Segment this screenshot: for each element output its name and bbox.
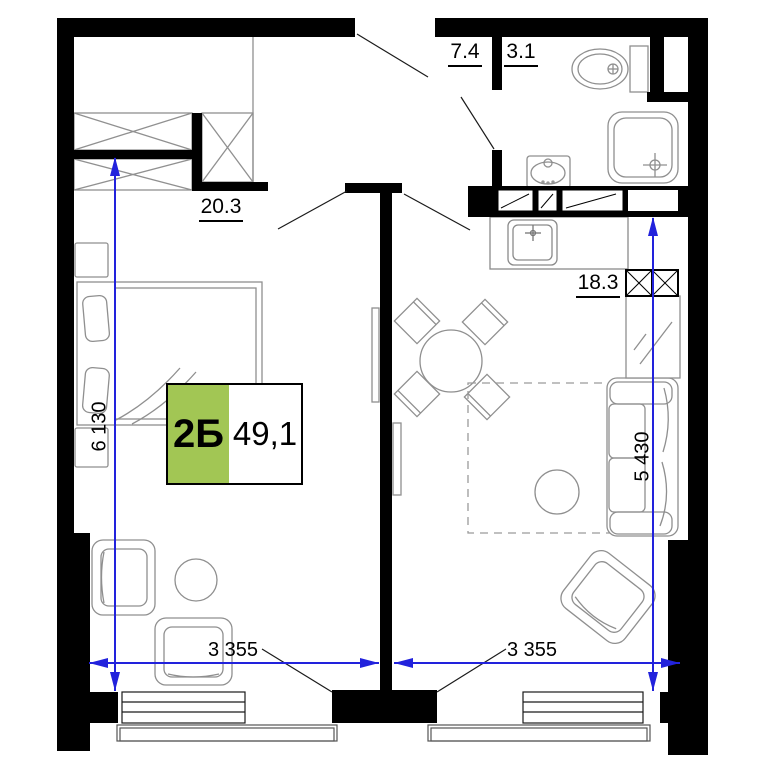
unit-area: 49,1 xyxy=(229,385,301,483)
window xyxy=(523,692,643,723)
floor-plan: 20.3 7.4 3.1 18.3 6 130 5 430 3 355 3 35… xyxy=(0,0,768,768)
washbasin xyxy=(527,156,570,188)
side-table xyxy=(175,559,217,601)
entrance-door-swing xyxy=(357,34,428,77)
balcony-sill xyxy=(117,725,650,741)
hall-closet-doors xyxy=(498,190,678,211)
lounge-armchair xyxy=(556,545,661,648)
bedroom-door-swing xyxy=(278,191,347,229)
wardrobe xyxy=(74,34,253,190)
bathroom-door-swing xyxy=(461,97,494,149)
room-label-living-kitchen: 18.3 xyxy=(568,271,628,298)
coffee-table xyxy=(535,470,579,514)
living-door-swing xyxy=(404,194,470,230)
console-shelf xyxy=(393,423,401,495)
room-label-bathroom: 3.1 xyxy=(496,40,546,67)
armchair xyxy=(92,540,155,615)
floor-plan-drawing xyxy=(0,0,768,768)
room-label-hall: 7.4 xyxy=(440,40,490,67)
window xyxy=(122,692,245,723)
room-label-bedroom: 20.3 xyxy=(191,195,251,222)
dimension-living-width: 3 355 xyxy=(492,639,572,662)
shower-tray xyxy=(608,112,678,183)
dimension-bedroom-width: 3 355 xyxy=(193,639,273,662)
toilet xyxy=(572,46,648,92)
console-shelf xyxy=(372,308,379,402)
dimension-living-height: 5 430 xyxy=(632,422,655,492)
unit-badge: 2Б 49,1 xyxy=(166,383,303,485)
dimension-bedroom-height: 6 130 xyxy=(89,392,112,462)
niche xyxy=(628,190,678,211)
unit-number: 2Б xyxy=(168,385,229,483)
kitchen-counter xyxy=(490,217,628,269)
